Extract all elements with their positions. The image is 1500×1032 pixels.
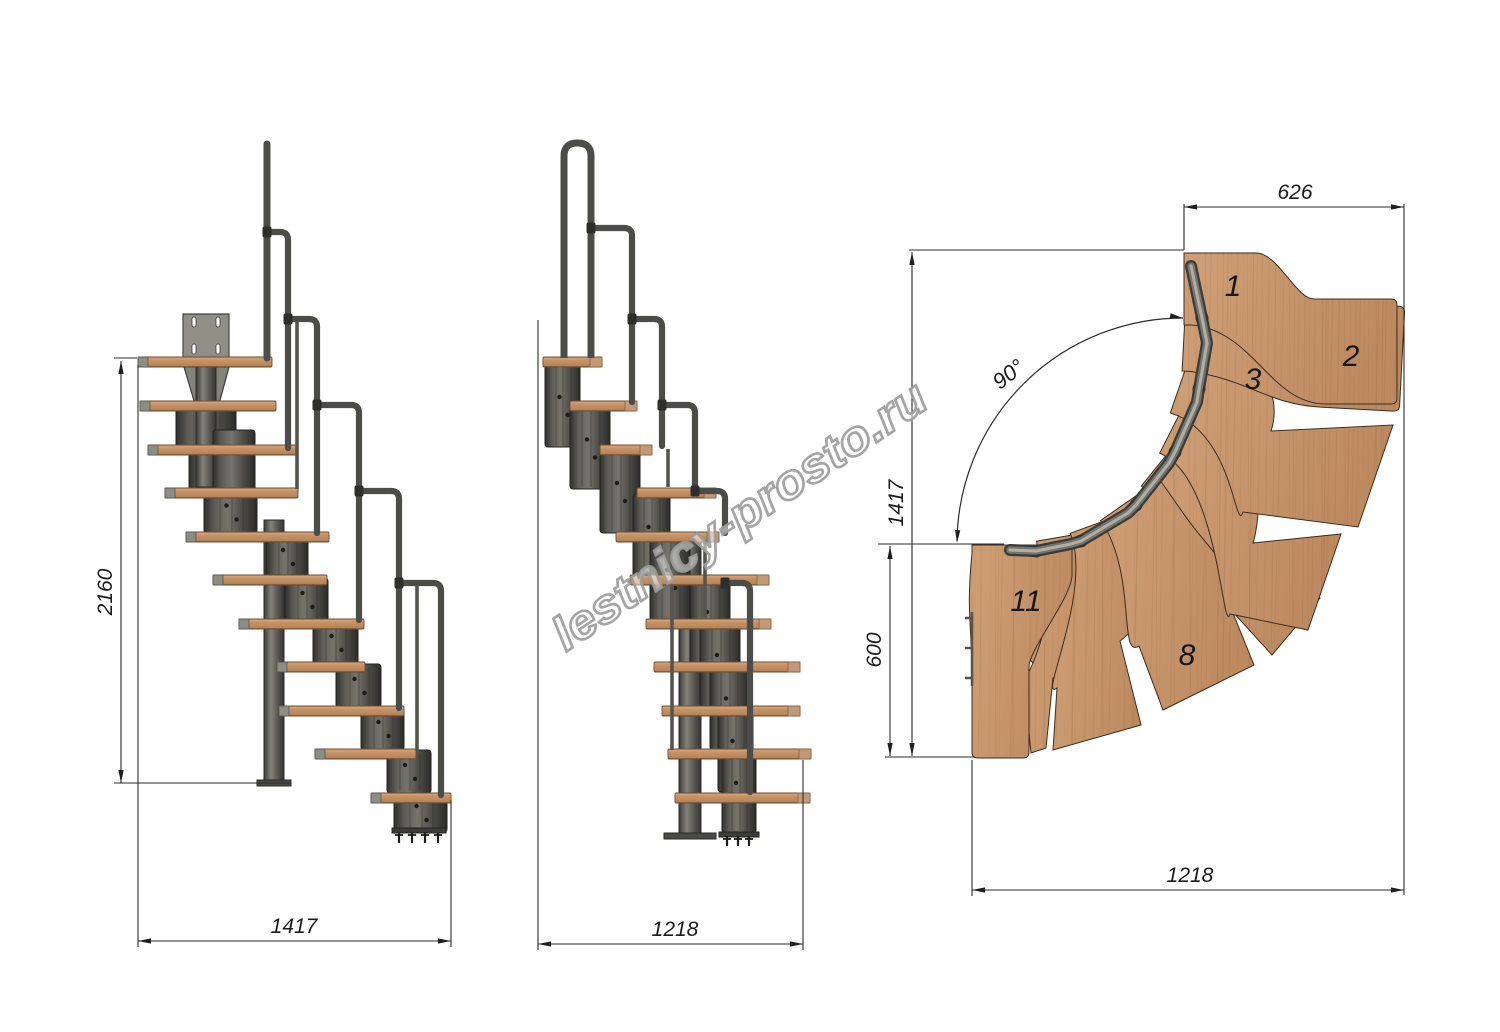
svg-text:8: 8 xyxy=(1179,639,1196,672)
svg-text:1218: 1218 xyxy=(652,918,699,941)
svg-text:626: 626 xyxy=(1277,181,1312,204)
svg-text:2160: 2160 xyxy=(94,568,117,616)
svg-text:11: 11 xyxy=(1010,585,1041,618)
svg-text:1417: 1417 xyxy=(271,915,319,938)
svg-text:1218: 1218 xyxy=(1167,864,1214,887)
svg-text:600: 600 xyxy=(863,632,886,667)
svg-text:1417: 1417 xyxy=(885,478,908,526)
svg-text:2: 2 xyxy=(1342,340,1360,373)
svg-text:3: 3 xyxy=(1245,363,1262,396)
svg-text:1: 1 xyxy=(1225,270,1242,303)
